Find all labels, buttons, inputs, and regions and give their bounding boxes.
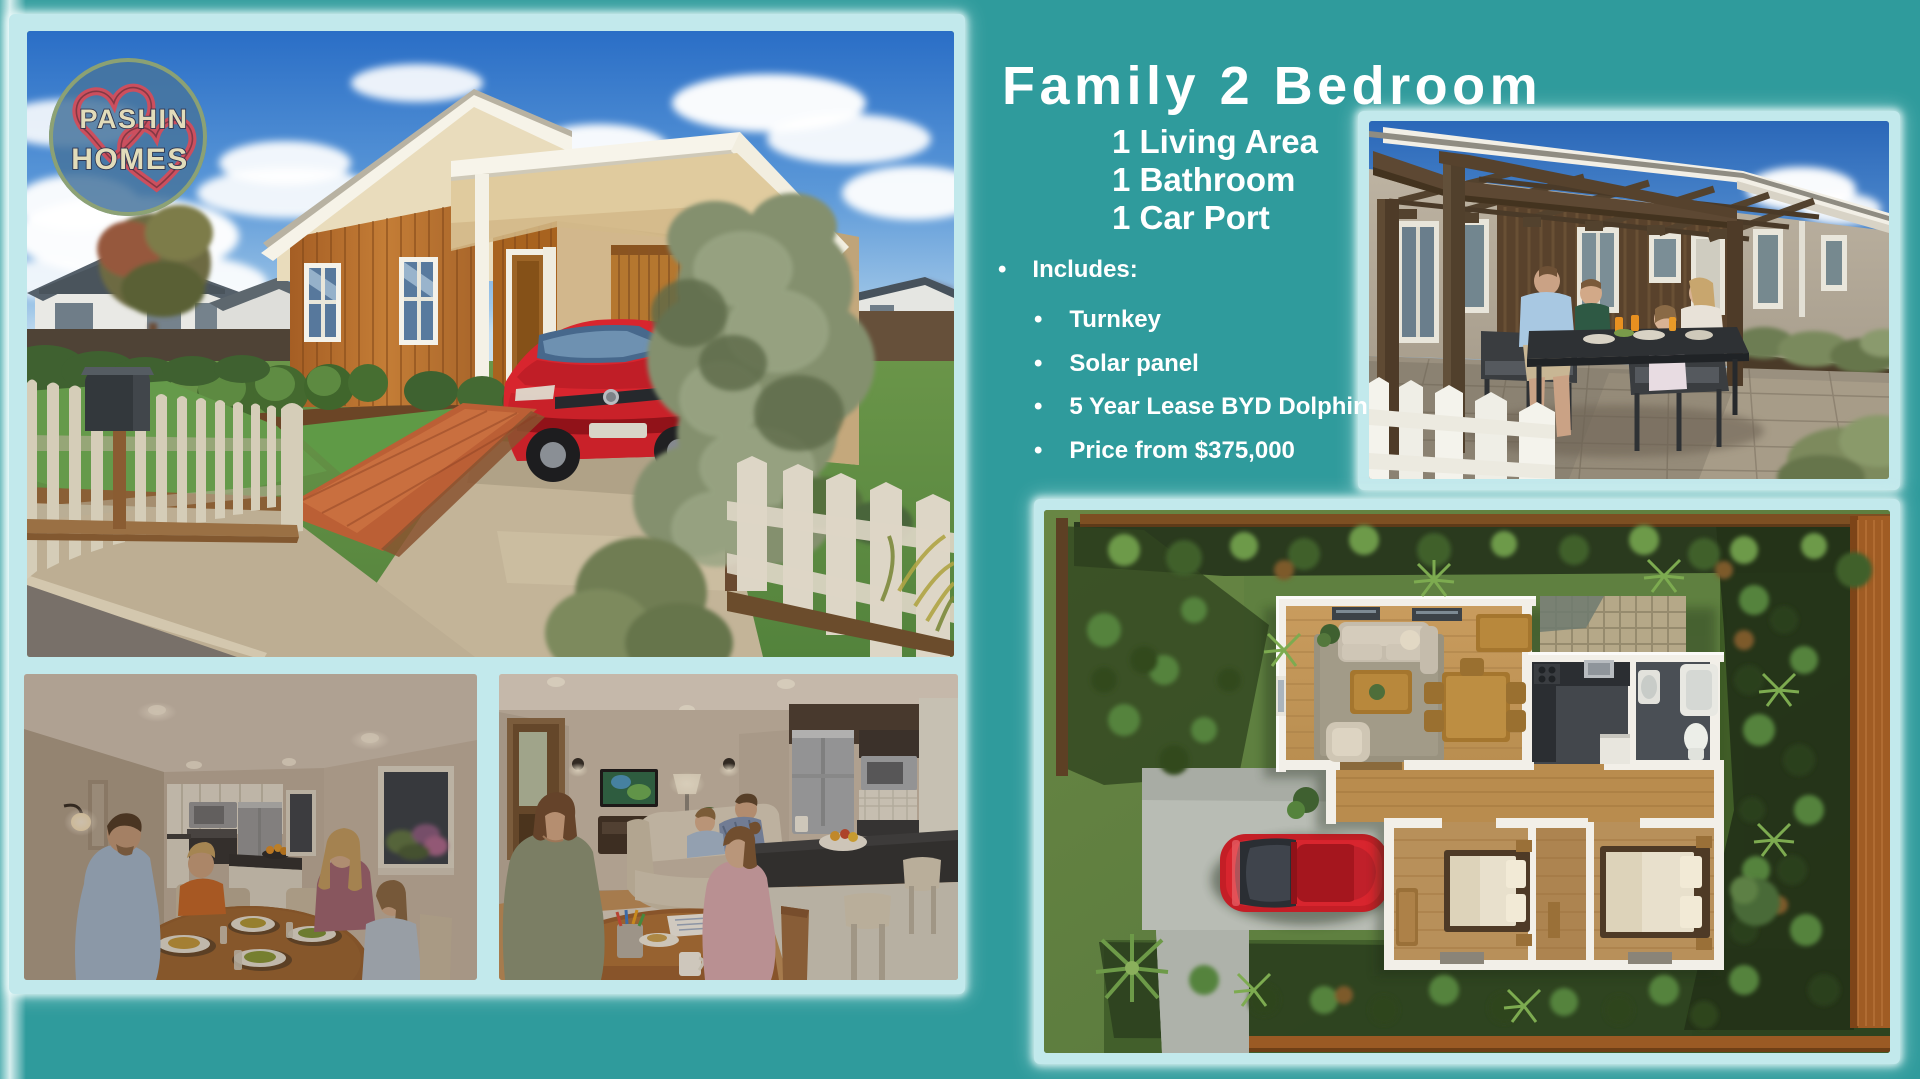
svg-text:PASHIN: PASHIN (79, 104, 188, 134)
svg-text:HOMES: HOMES (71, 143, 189, 176)
